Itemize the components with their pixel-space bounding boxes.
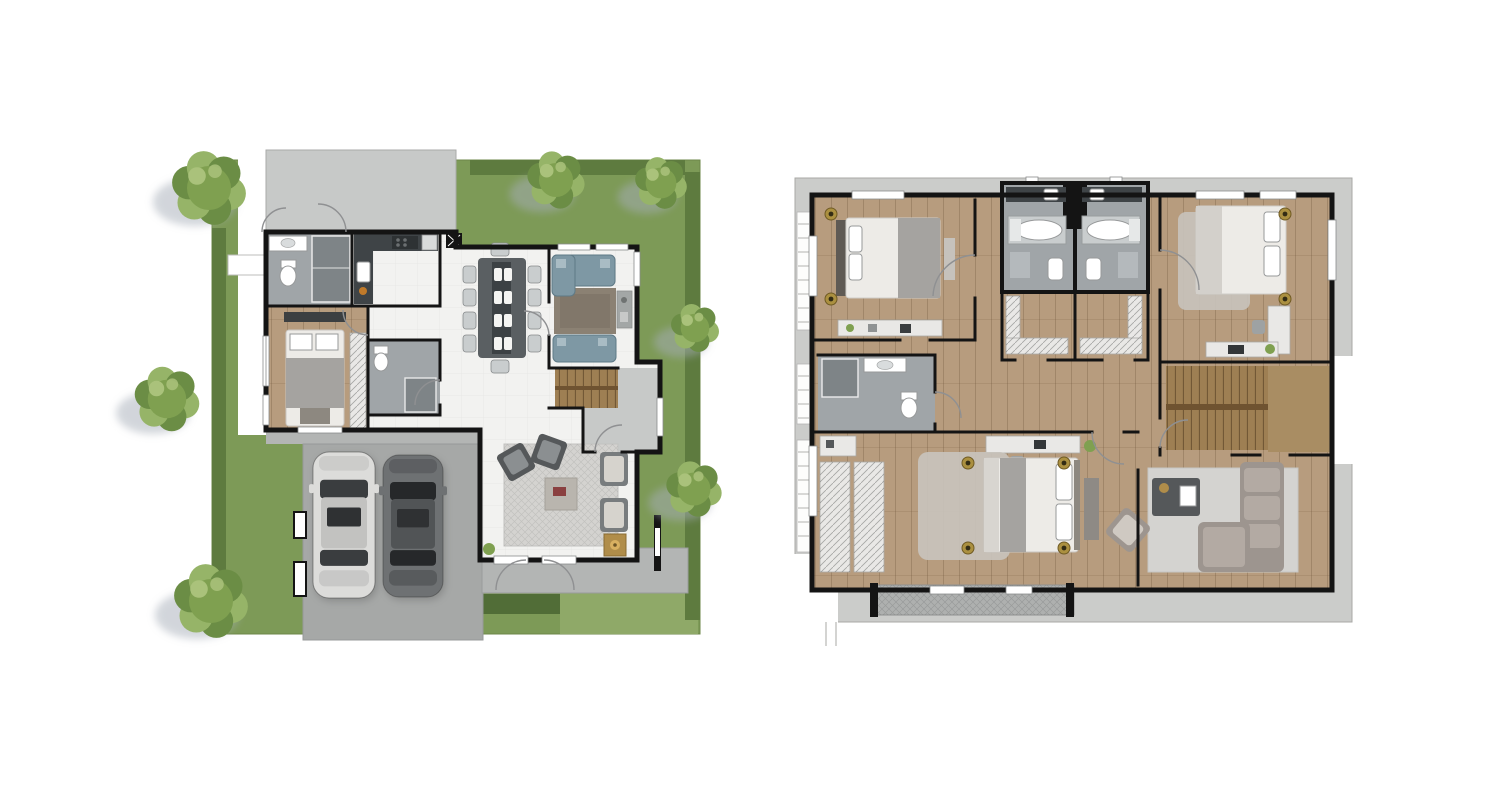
- stair-landing: [1268, 366, 1330, 452]
- plant: [846, 324, 854, 332]
- dresser-small: [820, 436, 856, 456]
- stair-landing: [618, 368, 660, 408]
- balcony-railing: [797, 364, 810, 424]
- kitchen-sink: [357, 262, 370, 282]
- pillow: [290, 334, 312, 350]
- tv: [1228, 345, 1244, 354]
- bathroom-3: [818, 355, 935, 432]
- left-balconies: [797, 212, 810, 552]
- balcony-railing: [797, 212, 810, 330]
- downlight: [1058, 542, 1070, 554]
- plant: [1084, 440, 1096, 452]
- downlight: [1058, 457, 1070, 469]
- eave-notch: [1334, 356, 1354, 464]
- shower: [312, 236, 350, 302]
- downlight: [962, 542, 974, 554]
- pot: [359, 287, 367, 295]
- blanket-fold: [1196, 206, 1222, 294]
- stove: [392, 236, 418, 249]
- side-table: [617, 291, 632, 328]
- floor-plan-canvas: [0, 0, 1500, 785]
- pillow: [1264, 212, 1280, 242]
- toilet: [1086, 258, 1101, 280]
- bench: [944, 238, 955, 280]
- plant: [483, 543, 495, 555]
- wc-shower: [405, 378, 436, 412]
- plant: [1265, 344, 1275, 354]
- first-floor-plan: [116, 150, 721, 640]
- wc-toilet: [374, 353, 388, 371]
- downlight: [1279, 293, 1291, 305]
- shower: [822, 359, 858, 397]
- desk-chair: [1252, 320, 1265, 334]
- blanket-fold: [984, 458, 999, 552]
- floor-plan-svg: [0, 0, 1500, 785]
- blanket: [286, 358, 344, 408]
- headboard: [1074, 460, 1080, 550]
- stairs-second-floor: [1166, 366, 1330, 452]
- downlight: [962, 457, 974, 469]
- vanity-desk: [986, 436, 1080, 453]
- family-area: [483, 433, 628, 556]
- laptop: [900, 324, 911, 333]
- book: [553, 487, 566, 496]
- bed-runner: [1000, 458, 1026, 552]
- stairs-first-floor: [555, 368, 618, 408]
- bed-bench: [300, 408, 330, 424]
- downlight: [825, 293, 837, 305]
- meter-box: [228, 255, 266, 275]
- dark-car: [379, 455, 447, 600]
- gate-post: [294, 562, 306, 596]
- light-car: [309, 452, 379, 601]
- patio-top: [266, 150, 456, 232]
- downlight: [1279, 208, 1291, 220]
- pillow: [1264, 246, 1280, 276]
- dresser: [1084, 478, 1099, 540]
- walkway: [266, 432, 482, 444]
- pillow: [849, 254, 862, 280]
- second-floor-plan: [793, 177, 1354, 646]
- toilet: [1048, 258, 1063, 280]
- pillow: [316, 334, 338, 350]
- tree: [116, 367, 199, 434]
- gate-post: [294, 512, 306, 538]
- downlight: [825, 208, 837, 220]
- toilet: [280, 266, 296, 286]
- toilet: [901, 398, 917, 418]
- fridge: [422, 235, 437, 250]
- pillow: [849, 226, 862, 252]
- headboard: [836, 220, 846, 296]
- hedge-left: [212, 228, 226, 588]
- balcony-railing: [797, 440, 810, 552]
- pillow: [1056, 504, 1072, 540]
- tv-console: [284, 312, 346, 322]
- blanket: [898, 218, 940, 298]
